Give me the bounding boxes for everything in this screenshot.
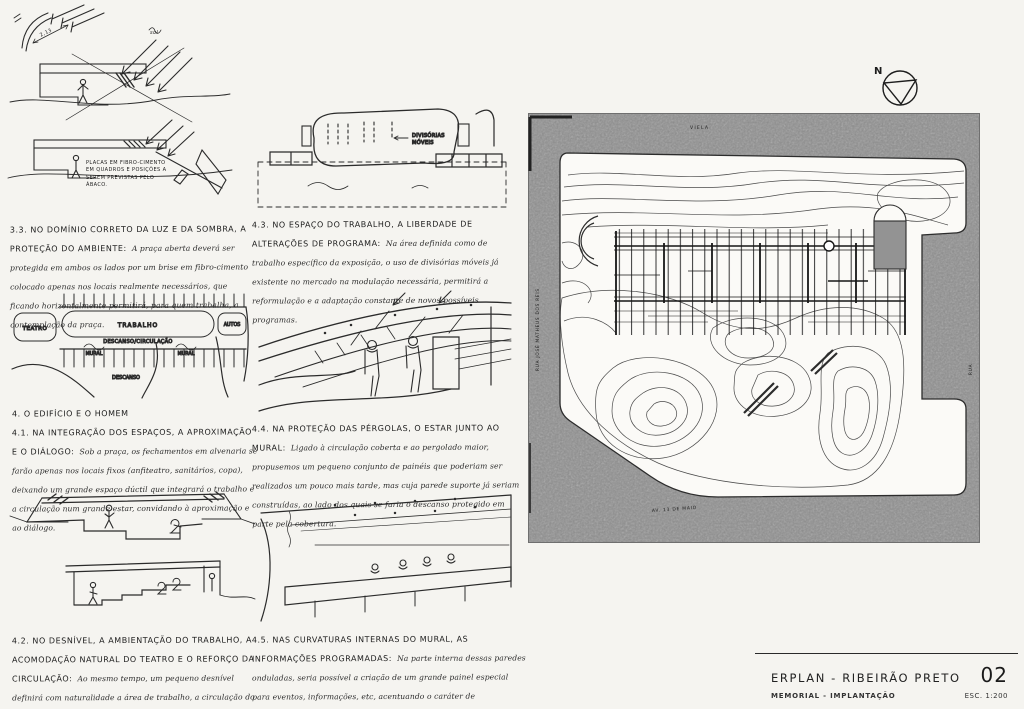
project-title: ERPLAN - RIBEIRÃO PRETO (771, 671, 961, 685)
label-trabalho: TRABALHO (117, 322, 159, 329)
sheet-subtitle: MEMORIAL - IMPLANTAÇÃO (771, 692, 896, 700)
memorial-board: PLACAS EM FIBRO-CIMENTO EM QUADROS E POS… (0, 0, 1024, 709)
mural-hall-perspective-sketch (255, 491, 519, 625)
street-label-right: RUA (968, 364, 973, 375)
street-label-top: VIELA (690, 125, 709, 131)
label-teatro: TEATRO (22, 326, 48, 332)
movable-partitions-plan-sketch: DIVISÓRIAS MÓVEIS (252, 104, 516, 210)
label-divisorias: DIVISÓRIAS (412, 132, 445, 139)
note-4-2: 4.2. NO DESNÍVEL, A AMBIENTAÇÃO DO TRABA… (12, 628, 260, 709)
note-4-heading: 4. O EDIFÍCIO E O HOMEM (12, 409, 129, 419)
section-sketches (8, 482, 256, 624)
note-4: 4. O EDIFÍCIO E O HOMEM (12, 401, 258, 420)
north-arrow: N (864, 56, 930, 114)
label-descanso: DESCANSO (112, 375, 140, 381)
label-moveis: MÓVEIS (412, 139, 434, 146)
exhibition-building (614, 229, 908, 335)
pergola-perspective-sketch (255, 289, 517, 416)
title-block: ERPLAN - RIBEIRÃO PRETO 02 MEMORIAL - IM… (755, 653, 1018, 709)
label-mural-left: MURAL (86, 351, 103, 357)
sheet-scale: ESC. 1:200 (965, 692, 1008, 700)
label-descanso-circulacao: DESCANSO/CIRCULAÇÃO (103, 338, 173, 345)
north-label: N (874, 66, 882, 77)
zoning-diagram-sketch: TEATRO TRABALHO AUTOS DESCANSO/CIRCULAÇÃ… (8, 291, 252, 399)
sun-label: sol (150, 30, 158, 37)
sheet-number: 02 (981, 663, 1008, 687)
label-autos: AUTOS (224, 322, 241, 328)
service-tower (874, 205, 906, 269)
street-label-left: RUA JOSÉ MATHEUS DOS REIS (535, 288, 540, 371)
label-mural-right: MURAL (178, 351, 195, 357)
site-plan: VIELA RUA JOSÉ MATHEUS DOS REIS AV. 13 D… (528, 113, 980, 545)
fibro-cement-note: PLACAS EM FIBRO-CIMENTO EM QUADROS E POS… (86, 160, 172, 189)
note-4-5: 4.5. NAS CURVATURAS INTERNAS DO MURAL, A… (252, 627, 526, 709)
